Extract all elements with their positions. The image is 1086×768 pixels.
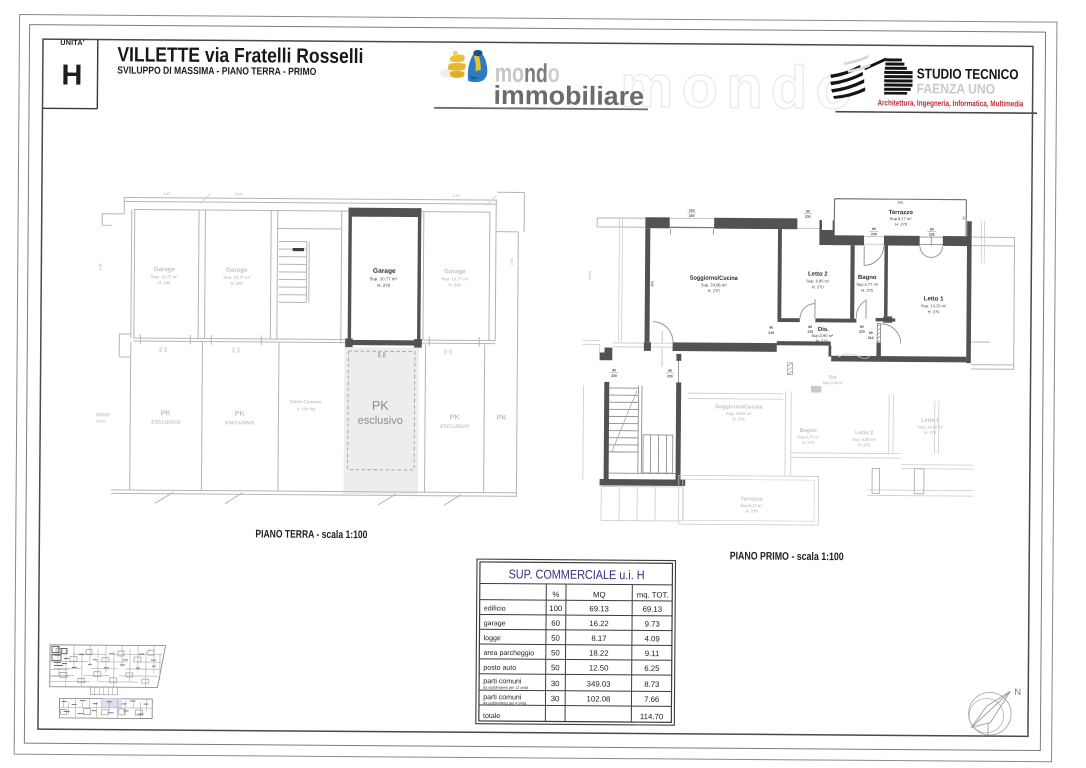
- svg-text:Letto 2: Letto 2: [808, 272, 828, 278]
- svg-text:Sup. 14,15 m²: Sup. 14,15 m²: [917, 424, 943, 429]
- svg-text:102.08: 102.08: [587, 694, 611, 703]
- svg-text:Garage: Garage: [444, 268, 466, 275]
- svg-text:H. 275: H. 275: [861, 288, 874, 293]
- svg-text:4.09: 4.09: [645, 634, 660, 643]
- svg-text:Sup. 6,85 m²: Sup. 6,85 m²: [806, 278, 830, 283]
- svg-text:460: 460: [650, 281, 654, 287]
- svg-text:7.66: 7.66: [644, 695, 659, 704]
- svg-text:30: 30: [551, 679, 560, 688]
- svg-text:PK: PK: [450, 412, 461, 421]
- svg-text:garage: garage: [484, 620, 506, 627]
- svg-text:edificio: edificio: [484, 605, 506, 612]
- svg-text:Sup. 12,77 m²: Sup. 12,77 m²: [441, 276, 469, 281]
- svg-text:50: 50: [551, 663, 560, 672]
- svg-text:logge: logge: [484, 635, 501, 642]
- svg-text:esclusivo: esclusivo: [358, 415, 403, 427]
- svg-text:230: 230: [805, 215, 811, 219]
- svg-text:210: 210: [868, 336, 874, 340]
- svg-text:Soggiorno/Cucina: Soggiorno/Cucina: [715, 404, 763, 410]
- svg-text:H. 270: H. 270: [858, 442, 871, 447]
- svg-text:230: 230: [611, 374, 617, 378]
- svg-text:16.22: 16.22: [589, 619, 609, 628]
- svg-text:mq. TOT.: mq. TOT.: [637, 590, 669, 599]
- svg-text:2,55: 2,55: [510, 258, 514, 265]
- svg-text:ESCLUSIVO: ESCLUSIVO: [440, 424, 469, 430]
- svg-text:69.13: 69.13: [643, 605, 663, 614]
- svg-text:Sup.3,90 m²: Sup.3,90 m²: [811, 333, 833, 338]
- svg-text:FAENZA UNO: FAENZA UNO: [917, 80, 996, 97]
- svg-text:50: 50: [551, 648, 560, 657]
- svg-text:SVILUPPO DI MASSIMA - PIANO TE: SVILUPPO DI MASSIMA - PIANO TERRA - PRIM…: [117, 65, 316, 77]
- svg-text:A: 120 Mq: A: 120 Mq: [296, 406, 315, 411]
- svg-text:90: 90: [962, 216, 966, 220]
- svg-text:100: 100: [549, 604, 563, 613]
- svg-text:H. 270: H. 270: [377, 283, 391, 288]
- svg-text:ESCLUSIVO: ESCLUSIVO: [225, 420, 254, 426]
- svg-text:2,55: 2,55: [453, 194, 460, 198]
- svg-text:Sup.4,77 m²: Sup.4,77 m²: [797, 434, 820, 439]
- svg-text:N: N: [1014, 687, 1021, 698]
- svg-text:H. 270: H. 270: [895, 222, 908, 227]
- svg-text:90: 90: [806, 210, 810, 214]
- svg-text:90: 90: [869, 331, 873, 335]
- svg-text:PK: PK: [497, 413, 508, 422]
- svg-text:scala: scala: [588, 270, 592, 280]
- svg-text:160: 160: [689, 209, 695, 213]
- svg-text:Architettura, Ingegneria, Info: Architettura, Ingegneria, Informatica, M…: [877, 98, 1023, 108]
- svg-text:5,00: 5,00: [235, 192, 242, 196]
- svg-text:230: 230: [667, 374, 673, 378]
- svg-text:349.03: 349.03: [587, 679, 611, 688]
- svg-text:Sup. 14,15 m²: Sup. 14,15 m²: [921, 303, 947, 308]
- svg-text:250: 250: [159, 347, 163, 353]
- svg-text:Sup. 24,06 m²: Sup. 24,06 m²: [701, 282, 727, 287]
- svg-text:250: 250: [449, 349, 453, 355]
- svg-text:2,40: 2,40: [163, 192, 170, 196]
- svg-text:Letto 1: Letto 1: [921, 418, 939, 424]
- svg-text:H. 240: H. 240: [158, 280, 171, 285]
- svg-text:Bagno: Bagno: [800, 428, 818, 434]
- svg-text:250: 250: [444, 349, 448, 355]
- svg-text:Sup. 6,85 m²: Sup. 6,85 m²: [852, 437, 876, 442]
- svg-text:230: 230: [871, 232, 877, 236]
- svg-text:H. 270: H. 270: [746, 508, 759, 513]
- svg-text:Corte Comune: Corte Comune: [290, 399, 322, 404]
- svg-text:6.25: 6.25: [644, 664, 660, 673]
- svg-text:H. 270: H. 270: [708, 288, 721, 293]
- svg-text:Letto 2: Letto 2: [855, 430, 873, 436]
- svg-text:210: 210: [768, 331, 774, 335]
- svg-text:VILLETTE via Fratelli Rosselli: VILLETTE via Fratelli Rosselli: [117, 43, 363, 68]
- svg-text:PK: PK: [372, 399, 390, 413]
- svg-text:ESCLUSIVO: ESCLUSIVO: [151, 420, 180, 426]
- svg-text:50: 50: [551, 634, 560, 643]
- svg-text:12.50: 12.50: [589, 663, 609, 672]
- svg-text:da suddividersi per 12 unità: da suddividersi per 12 unità: [483, 686, 529, 690]
- svg-text:90: 90: [930, 227, 934, 231]
- svg-text:250: 250: [232, 347, 236, 353]
- svg-text:230: 230: [929, 233, 935, 237]
- svg-text:9.73: 9.73: [645, 619, 660, 628]
- svg-text:Sup. 10,77 m²: Sup. 10,77 m²: [369, 276, 397, 281]
- svg-text:Garage: Garage: [153, 266, 175, 273]
- svg-text:9,60: 9,60: [98, 263, 102, 270]
- svg-text:Terrazzo: Terrazzo: [741, 496, 764, 502]
- svg-text:Sup. 24,06 m²: Sup. 24,06 m²: [726, 411, 752, 416]
- svg-text:Soggiorno/Cucina: Soggiorno/Cucina: [690, 275, 739, 282]
- svg-text:250: 250: [164, 347, 168, 353]
- svg-text:MQ: MQ: [593, 590, 606, 599]
- svg-text:80: 80: [808, 325, 812, 329]
- svg-text:H: H: [61, 59, 82, 91]
- svg-text:Garage: Garage: [226, 267, 248, 274]
- svg-text:90: 90: [612, 368, 616, 372]
- svg-text:PK: PK: [161, 408, 172, 417]
- svg-text:250: 250: [382, 352, 386, 358]
- svg-text:H. 240: H. 240: [449, 282, 462, 287]
- svg-text:60: 60: [551, 619, 560, 628]
- svg-text:H. 275: H. 275: [802, 440, 815, 445]
- svg-text:Sup.3,90 m²: Sup.3,90 m²: [822, 381, 844, 385]
- svg-text:90: 90: [668, 369, 672, 373]
- svg-text:SUP. COMMERCIALE u.i. H: SUP. COMMERCIALE u.i. H: [509, 566, 645, 582]
- svg-text:H. 270: H. 270: [812, 284, 825, 289]
- svg-text:8.73: 8.73: [644, 680, 659, 689]
- svg-text:H. 240: H. 240: [231, 281, 244, 286]
- svg-text:mondo: mondo: [620, 53, 860, 122]
- svg-text:PIANO PRIMO - scala 1:100: PIANO PRIMO - scala 1:100: [730, 550, 844, 563]
- svg-text:totale: totale: [483, 713, 500, 720]
- svg-text:69.13: 69.13: [589, 604, 609, 613]
- svg-text:Sup. 12,77 m²: Sup. 12,77 m²: [151, 274, 179, 279]
- svg-text:Bagno: Bagno: [858, 275, 877, 281]
- svg-text:250: 250: [377, 352, 381, 358]
- svg-text:immobiliare: immobiliare: [493, 80, 644, 111]
- svg-text:210: 210: [859, 330, 865, 334]
- svg-text:80: 80: [860, 325, 864, 329]
- svg-text:9.11: 9.11: [645, 649, 660, 658]
- svg-text:545: 545: [897, 201, 903, 205]
- svg-text:30: 30: [551, 694, 560, 703]
- svg-text:Sup.4,77 m²: Sup.4,77 m²: [856, 282, 878, 287]
- svg-text:8.17: 8.17: [591, 634, 606, 643]
- svg-text:Dis.: Dis.: [828, 375, 838, 381]
- svg-text:Sup. 12,77 m²: Sup. 12,77 m²: [223, 275, 251, 280]
- svg-text:H. 270: H. 270: [733, 416, 746, 421]
- svg-text:parti comuni: parti comuni: [483, 678, 522, 685]
- svg-text:H. 270: H. 270: [924, 430, 937, 435]
- svg-text:PK: PK: [235, 409, 246, 418]
- svg-text:250: 250: [237, 347, 241, 353]
- svg-text:18.22: 18.22: [589, 649, 609, 658]
- svg-text:230: 230: [689, 214, 695, 218]
- svg-text:Sup.8,17 m²: Sup.8,17 m²: [890, 216, 912, 221]
- svg-text:UNITA': UNITA': [60, 38, 84, 47]
- svg-text:PIANO TERRA - scala 1:100: PIANO TERRA - scala 1:100: [255, 528, 367, 541]
- svg-text:%: %: [552, 590, 559, 599]
- svg-text:Letto 1: Letto 1: [924, 296, 944, 302]
- svg-text:H. 270: H. 270: [816, 338, 829, 343]
- svg-text:90: 90: [872, 227, 876, 231]
- svg-text:114.70: 114.70: [640, 712, 664, 721]
- svg-text:H. 270: H. 270: [928, 309, 941, 314]
- svg-text:Sup.8,17 m²: Sup.8,17 m²: [740, 503, 763, 508]
- svg-text:posto auto: posto auto: [483, 665, 516, 672]
- svg-text:area parcheggio: area parcheggio: [483, 650, 534, 657]
- svg-text:da suddividersi per 4 unità: da suddividersi per 4 unità: [483, 701, 527, 705]
- svg-text:80: 80: [769, 326, 773, 330]
- svg-text:Garage: Garage: [373, 268, 396, 275]
